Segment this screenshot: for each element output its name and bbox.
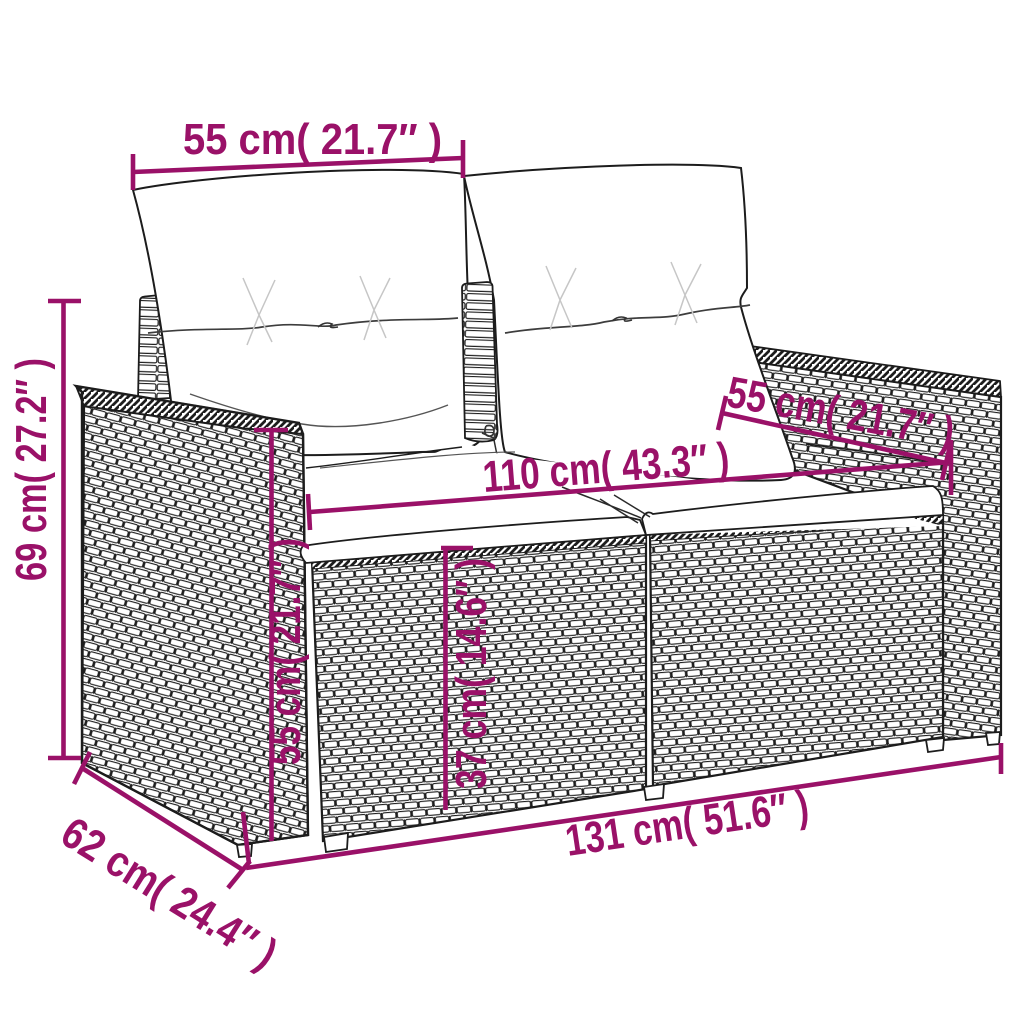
svg-text:37 cm( 14.6″ ): 37 cm( 14.6″ ) — [447, 558, 496, 789]
svg-text:55 cm( 21.7″ ): 55 cm( 21.7″ ) — [183, 115, 442, 164]
svg-text:69 cm( 27.2″ ): 69 cm( 27.2″ ) — [7, 358, 56, 581]
svg-text:55 cm( 21.7″ ): 55 cm( 21.7″ ) — [261, 538, 310, 765]
